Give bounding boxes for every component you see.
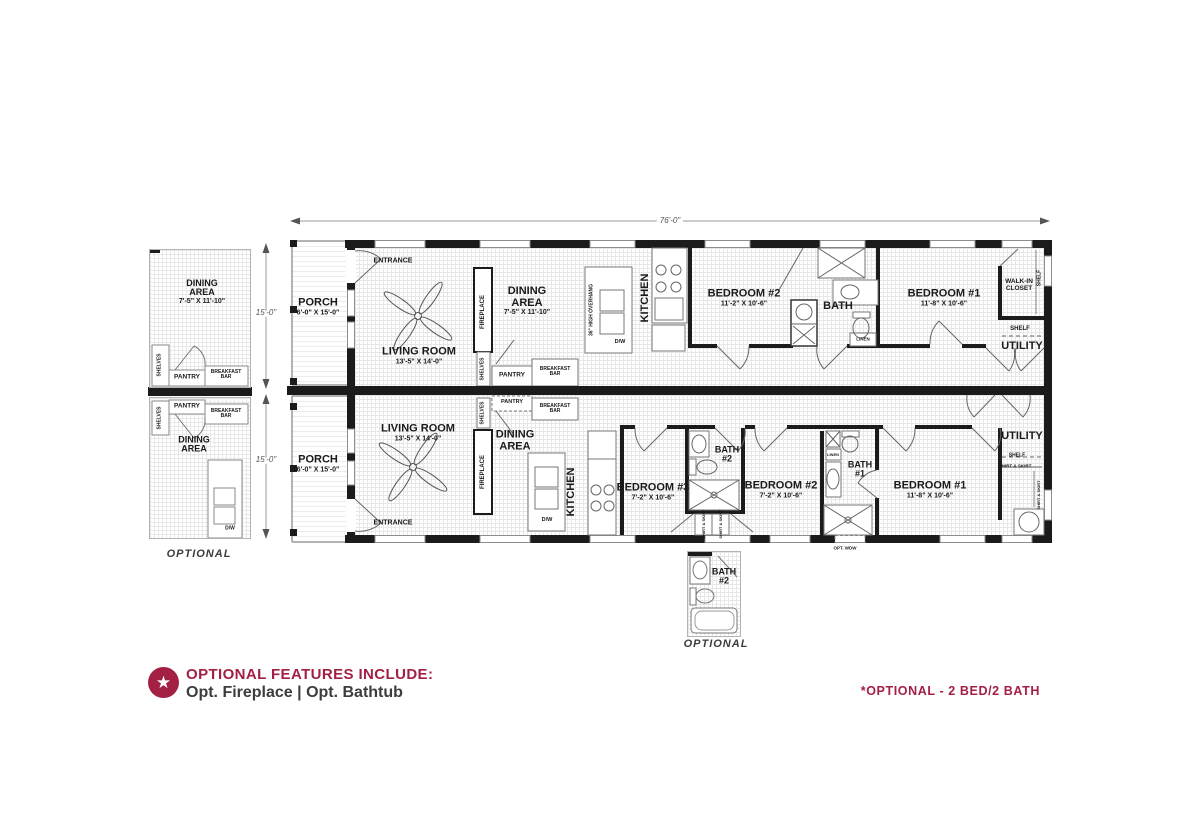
shared-mid-wall <box>287 386 1052 395</box>
detail-top-shelves-label: SHELVES <box>157 354 162 377</box>
breakfast-bar-label-top: BREAKFASTBAR <box>540 367 571 378</box>
star-icon: ★ <box>156 673 171 693</box>
shelf-label-bottom: SHELF <box>1009 453 1025 458</box>
porch-label-top: PORCH6'-0" X 15'-0" <box>297 298 340 317</box>
breakfast-bar-label-bottom: BREAKFASTBAR <box>540 404 571 415</box>
entrance-label-bottom: ENTRANCE <box>374 519 413 526</box>
bedroom3-label-bottom: BEDROOM #37'-2" X 10'-6" <box>617 483 690 502</box>
overhang-label-top: 36" HIGH OVERHANG <box>589 284 594 336</box>
pantry-label-top: PANTRY <box>499 373 525 380</box>
kitchen-label-bottom: KITCHEN <box>566 468 578 517</box>
optional-bath-caption: OPTIONAL <box>684 639 749 651</box>
detail-bottom-breakfast-bar-label: BREAKFASTBAR <box>211 409 242 420</box>
optional-features-list: Opt. Fireplace | Opt. Bathtub <box>186 684 403 702</box>
bedroom1-label-top: BEDROOM #111'-8" X 10'-6" <box>908 289 981 308</box>
dw-label-top: D/W <box>615 340 626 346</box>
optional-dining-detail-top-drawing <box>150 250 250 387</box>
porch-label-bottom: PORCH6'-0" X 15'-0" <box>297 455 340 474</box>
shirt-skirt-label-bottom: SHIRT & SKIRT <box>999 465 1032 470</box>
shelves-label-bottom: SHELVES <box>480 402 485 425</box>
shirt-skirt-closet-right-label: SHIRT & SKIRT <box>719 509 723 538</box>
living-room-label-bottom: LIVING ROOM13'-5" X 14'-0" <box>381 424 455 443</box>
fireplace-label-bottom: FIREPLACE <box>480 455 486 489</box>
bedroom2-label-top: BEDROOM #211'-2" X 10'-6" <box>708 289 781 308</box>
walkin-closet-label-top: WALK-INCLOSET <box>1005 279 1033 293</box>
detail-bottom-dining-label: DINING AREA <box>178 436 210 455</box>
pantry-label-bottom: PANTRY <box>501 400 523 406</box>
fireplace-label-top: FIREPLACE <box>480 295 486 329</box>
kitchen-label-top: KITCHEN <box>640 274 652 323</box>
detail-top-dining-label: DINING AREA 7'-5" X 11'-10" <box>179 279 225 305</box>
opt-window-label: OPT. WDW <box>834 547 857 552</box>
bedroom2-label-bottom: BEDROOM #27'-2" X 10'-6" <box>745 481 818 500</box>
shelves-label-top: SHELVES <box>480 358 485 381</box>
bath-label-top: BATH <box>823 301 853 313</box>
dining-label-bottom: DININGAREA <box>496 429 535 452</box>
shirt-skirt-closet-left-label: SHIRT & SKIRT <box>702 509 706 538</box>
walkin-shelf-label-top: SHELF <box>1037 270 1042 286</box>
utility-label-bottom: UTILITY <box>1001 431 1043 443</box>
optional-dining-detail-top: DINING AREA 7'-5" X 11'-10" SHELVES PANT… <box>150 250 250 387</box>
optional-features-headline: OPTIONAL FEATURES INCLUDE: <box>186 666 433 683</box>
bath1-label-bottom: BATH#1 <box>848 461 872 480</box>
dw-label-bottom: D/W <box>542 518 553 524</box>
detail-top-pantry-label: PANTRY <box>174 375 200 382</box>
floor-plan-sheet: 76'-0" 15'-0" 15'-0" DINING AREA <box>0 0 1200 818</box>
star-badge: ★ <box>148 667 179 698</box>
optional-dining-detail-bottom: PANTRY SHELVES BREAKFASTBAR DINING AREA … <box>150 398 250 538</box>
dining-label-top: DINING AREA 7'-5" X 11'-10" <box>504 286 550 316</box>
shelf-label-top: SHELF <box>1010 326 1030 332</box>
linen-label-top: LINEN <box>856 338 870 343</box>
detail-bottom-pantry-label: PANTRY <box>174 404 200 411</box>
shirt-skirt-vertical-label-bottom: SHIRT & SKIRT <box>1037 480 1041 509</box>
detail-bottom-dw-label: D/W <box>225 526 235 531</box>
linen-label-bottom: LINEN <box>827 453 839 457</box>
overall-width-dimension: 76'-0" <box>657 217 683 225</box>
optional-variant-note: *OPTIONAL - 2 BED/2 BATH <box>861 684 1040 698</box>
lower-height-dimension: 15'-0" <box>253 456 279 464</box>
optional-bath-detail-drawing <box>688 552 740 636</box>
bath2-label-bottom: BATH#2 <box>715 446 739 465</box>
detail-top-breakfast-bar-label: BREAKFASTBAR <box>211 370 242 381</box>
height-dimension-lines <box>258 240 274 540</box>
optional-bath-label: BATH#2 <box>712 568 736 587</box>
detail-mid-wall <box>148 387 252 396</box>
optional-bath-detail: BATH#2 <box>688 552 740 636</box>
utility-label-top: UTILITY <box>1001 341 1043 353</box>
bedroom1-label-bottom: BEDROOM #111'-8" X 10'-6" <box>894 481 967 500</box>
detail-bottom-shelves-label: SHELVES <box>157 407 162 430</box>
upper-height-dimension: 15'-0" <box>253 309 279 317</box>
entrance-label-top: ENTRANCE <box>374 257 413 264</box>
detail-bottom-optional-caption: OPTIONAL <box>167 549 232 561</box>
living-room-label-top: LIVING ROOM13'-5" X 14'-0" <box>382 347 456 366</box>
